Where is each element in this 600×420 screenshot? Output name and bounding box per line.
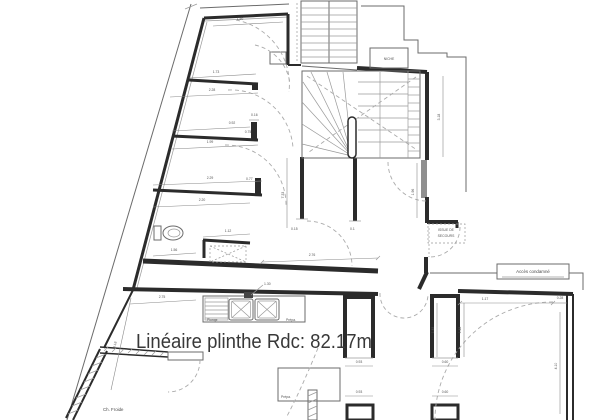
dim-016: 0.16: [251, 113, 258, 117]
wall-c-return: [255, 178, 261, 195]
prepa-table-label: Prépa.: [281, 395, 291, 399]
ch-froide-label: Ch. Froide: [103, 407, 124, 412]
floor-plan-drawing: NICHE Plonge Prépa. Prépa.: [0, 0, 600, 420]
floor-plan: NICHE Plonge Prépa. Prépa.: [0, 0, 600, 420]
dim-148a: 1.48: [431, 327, 435, 334]
issue-secours-label-2: SECOURS: [438, 234, 456, 238]
faucet: [244, 292, 253, 298]
dim-199: 1.99: [207, 140, 214, 144]
dim-220: 2.20: [199, 198, 206, 202]
dim-196: 1.96: [411, 189, 415, 196]
dim-148b: 1.48: [458, 327, 462, 334]
door-leaf: [421, 160, 427, 198]
dim-093a: 0.93: [356, 360, 363, 364]
niche-label: NICHE: [384, 57, 395, 61]
dim-075: 0.75: [245, 130, 252, 134]
dim-275: 2.75: [159, 295, 166, 299]
dim-010: 0.1: [350, 227, 355, 231]
wall-a-return: [252, 84, 258, 90]
dim-060a: 0.60: [442, 360, 449, 364]
stair-newel-wall: [348, 117, 356, 158]
dim-093b: 0.93: [356, 390, 363, 394]
dim-229: 2.29: [207, 176, 214, 180]
dim-276: 2.76: [309, 253, 316, 257]
plan-title: Linéaire plinthe Rdc: 82.17m: [136, 331, 372, 353]
dim-028: 0.28: [557, 296, 564, 300]
dim-733: 7.33: [281, 192, 285, 199]
dim-117: 1.17: [482, 297, 489, 301]
dim-156: 1.56: [171, 248, 178, 252]
acces-condamne-label: Accès condamné: [516, 269, 550, 274]
dim-173: 1.73: [213, 70, 220, 74]
issue-secours-label-1: ISSUE DE: [438, 228, 455, 232]
dim-092: 0.92: [229, 121, 236, 125]
dim-150: 1.50: [237, 17, 244, 21]
dim-077: 0.77: [246, 177, 253, 181]
dim-015: 0.15: [291, 227, 298, 231]
dim-318: 3.18: [437, 114, 441, 121]
wall-b-return: [251, 122, 257, 140]
dim-228: 2.28: [209, 88, 216, 92]
plonge-label: Plonge: [207, 318, 218, 322]
dim-112: 1.12: [225, 229, 232, 233]
prepa-counter-label: Prépa.: [286, 318, 296, 322]
dim-410: 4.10: [554, 363, 558, 370]
dim-060b: 0.60: [442, 390, 449, 394]
dim-130: 1.30: [264, 282, 271, 286]
